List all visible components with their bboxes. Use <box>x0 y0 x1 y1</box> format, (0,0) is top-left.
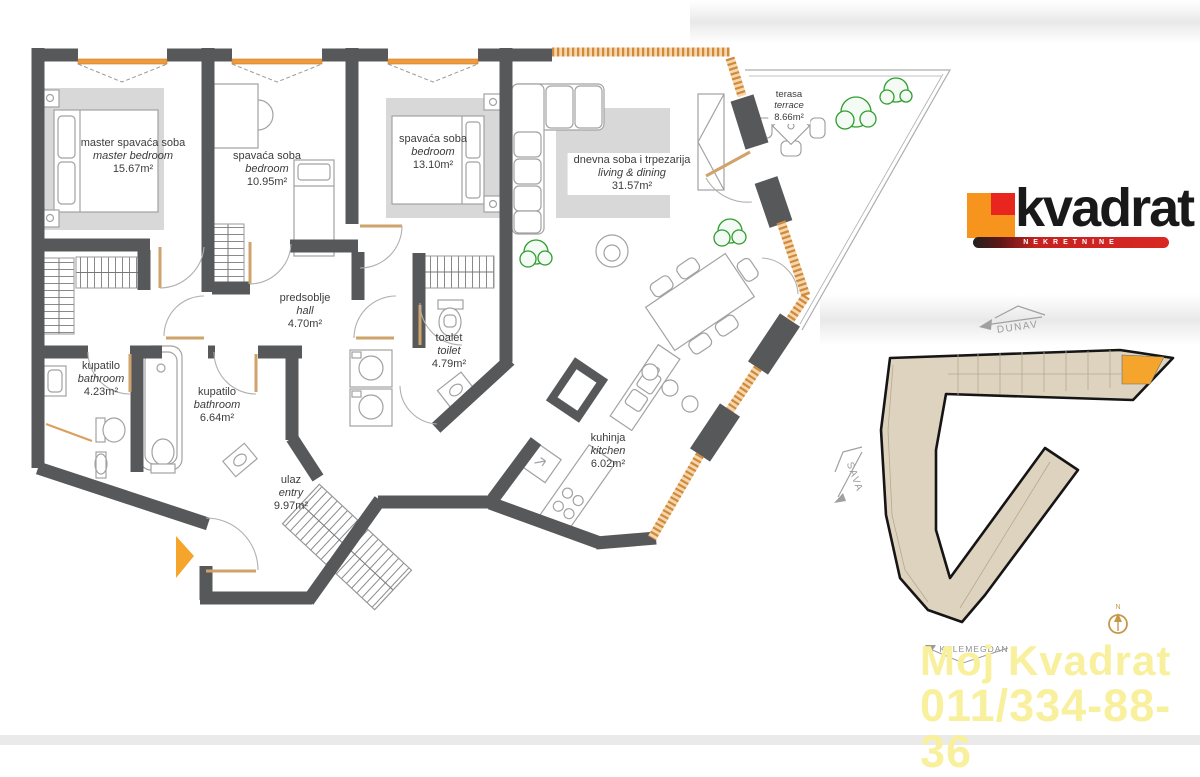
toilet-wc <box>438 300 463 336</box>
dining-table <box>637 231 778 364</box>
room-label-kitchen: kuhinja kitchen 6.02m² <box>591 432 626 472</box>
room-label-bathroom-1: kupatilo bathroom 4.23m² <box>78 360 124 400</box>
bar-stool <box>682 396 698 412</box>
floor-plan-page: Moj Kvadrat 011/334-88-36 <box>0 0 1200 745</box>
room-label-bedroom-1: spavaća soba bedroom 10.95m² <box>233 150 301 190</box>
floor-plan-drawing: DUNAV SAVA KALEMEGDAN N <box>0 0 1200 745</box>
room-label-bathroom-2: kupatilo bathroom 6.64m² <box>194 386 240 426</box>
logo-brand-name: kvadrat <box>1015 177 1193 239</box>
window <box>78 48 167 82</box>
room-label-toilet: toalet toilet 4.79m² <box>432 332 466 372</box>
washing-machines <box>350 350 392 426</box>
kitchen-pass-through <box>546 357 608 422</box>
bar-stool <box>642 364 658 380</box>
room-label-living-dining: dnevna soba i trpezarija living & dining… <box>568 153 697 195</box>
room-label-hall: predsoblje hall 4.70m² <box>280 292 331 332</box>
highlighted-unit <box>1122 355 1164 384</box>
wardrobes <box>44 224 494 610</box>
door-arcs <box>88 178 798 570</box>
logo-red-square-icon <box>991 193 1015 215</box>
master-wardrobe <box>44 257 140 334</box>
watermark: Moj Kvadrat 011/334-88-36 <box>920 640 1200 775</box>
site-plan: DUNAV SAVA KALEMEGDAN N <box>834 306 1173 663</box>
entrance-arrow <box>176 536 194 578</box>
window <box>388 48 478 82</box>
logo-tagline: NEKRETNINE <box>1023 239 1119 246</box>
room-label-bedroom-2: spavaća soba bedroom 13.10m² <box>399 133 467 173</box>
plant <box>880 78 912 104</box>
room-label-master-bedroom: master spavaća soba master bedroom 15.67… <box>81 137 186 177</box>
north-indicator: N <box>1109 604 1127 633</box>
plant <box>714 219 746 246</box>
logo-orange-square-icon <box>967 193 1015 238</box>
building-footprint <box>881 350 1173 622</box>
watermark-brand: Moj Kvadrat <box>920 640 1200 683</box>
room-label-entry: ulaz entry 9.97m² <box>274 474 308 514</box>
north-label: N <box>1115 604 1120 611</box>
windows <box>78 48 478 82</box>
living-cabinet <box>698 94 724 190</box>
toilet-radiator <box>424 256 494 288</box>
bedroom2-wardrobe <box>212 224 244 282</box>
living-chair <box>596 235 628 267</box>
window <box>232 48 322 82</box>
plant <box>836 97 876 129</box>
logo-tagline-bar: NEKRETNINE <box>973 237 1169 248</box>
watermark-phone: 011/334-88-36 <box>920 683 1200 775</box>
kvadrat-logo: kvadrat NEKRETNINE <box>965 190 1175 254</box>
bar-stool <box>662 380 678 396</box>
sava-label: SAVA <box>844 461 865 494</box>
plant <box>520 240 552 267</box>
room-label-terrace: terasa terrace 8.66m² <box>768 88 810 124</box>
